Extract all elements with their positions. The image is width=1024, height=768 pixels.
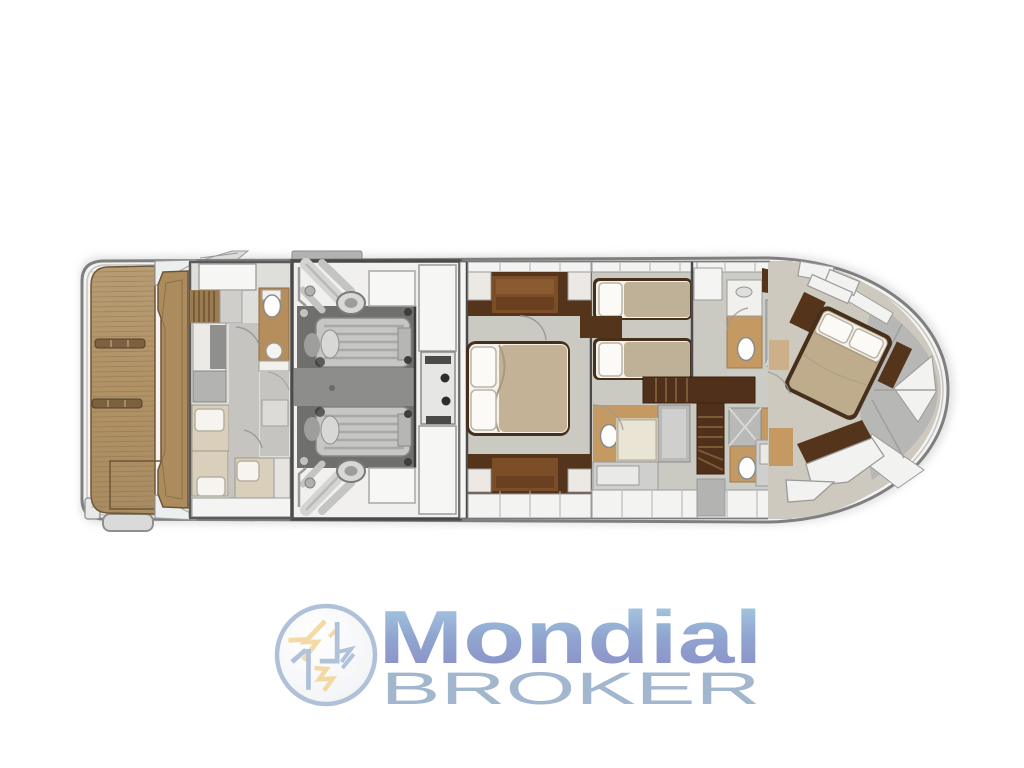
svg-text:BROKER: BROKER — [381, 663, 761, 714]
